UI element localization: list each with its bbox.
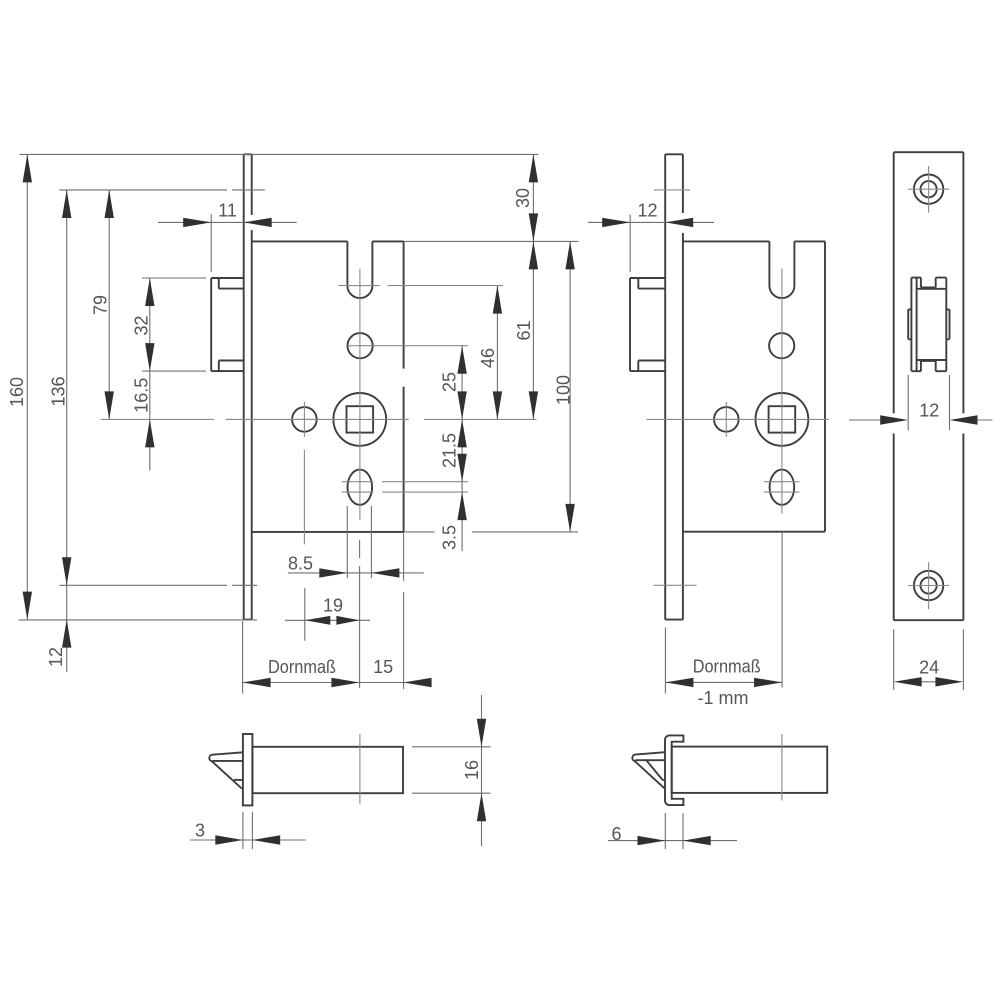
svg-text:21.5: 21.5 [440,433,460,468]
svg-text:46: 46 [478,348,498,368]
svg-text:8.5: 8.5 [288,553,313,573]
svg-text:19: 19 [323,595,343,615]
svg-text:Dornmaß: Dornmaß [693,657,761,677]
svg-text:3.5: 3.5 [440,525,460,550]
svg-text:160: 160 [7,377,27,407]
svg-text:16.5: 16.5 [131,378,151,413]
svg-text:79: 79 [91,295,111,315]
svg-text:12: 12 [637,200,657,220]
svg-text:30: 30 [513,188,533,208]
svg-text:100: 100 [554,375,574,405]
svg-text:16: 16 [462,760,482,780]
svg-text:3: 3 [195,820,205,840]
svg-text:-1 mm: -1 mm [698,688,749,708]
svg-text:Dornmaß: Dornmaß [268,657,336,677]
svg-text:11: 11 [218,200,237,220]
svg-text:136: 136 [49,376,69,406]
svg-text:15: 15 [373,657,393,677]
svg-text:32: 32 [131,315,151,335]
svg-text:24: 24 [919,657,939,677]
svg-text:12: 12 [46,647,66,667]
svg-text:12: 12 [919,401,939,421]
svg-text:6: 6 [611,824,621,844]
svg-text:25: 25 [440,372,460,392]
svg-text:61: 61 [514,320,534,340]
